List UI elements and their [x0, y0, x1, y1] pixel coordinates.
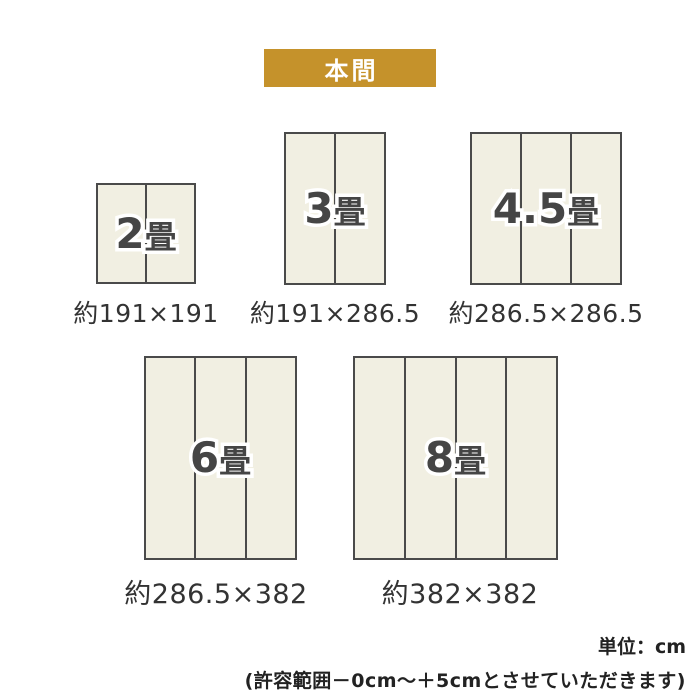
tatami-mat-2jo: 2畳 2畳 [96, 183, 196, 284]
tatami-mat-4-5jo: 4.5畳 4.5畳 [470, 132, 622, 285]
mat-dimensions-6jo: 約286.5×382 [124, 572, 307, 611]
tatami-panel [245, 358, 295, 558]
mat-dimensions-2jo: 約191×191 [73, 294, 218, 330]
tatami-mat-6jo: 6畳 6畳 [144, 356, 297, 560]
size-standard-banner: 本間 [264, 49, 436, 87]
size-diagram: 本間 2畳 2畳 約191×191 3畳 3畳 約191×286.5 [0, 0, 700, 700]
tatami-panel [194, 358, 244, 558]
tatami-panel [334, 134, 384, 283]
tatami-panels [146, 358, 295, 558]
tatami-panels [472, 134, 620, 283]
tatami-panel [455, 358, 506, 558]
tatami-panel [355, 358, 404, 558]
size-standard-label: 本間 [322, 51, 379, 86]
tatami-panel [145, 185, 194, 282]
tatami-panel [98, 185, 145, 282]
tatami-panel [570, 134, 620, 283]
tatami-panel [146, 358, 194, 558]
tatami-panel [286, 134, 334, 283]
tatami-panels [355, 358, 556, 558]
tatami-panel [404, 358, 455, 558]
tatami-mat-3jo: 3畳 3畳 [284, 132, 386, 285]
tatami-panel [505, 358, 556, 558]
unit-label: 単位：cm [245, 632, 686, 659]
tatami-panel [472, 134, 520, 283]
mat-dimensions-8jo: 約382×382 [382, 572, 539, 611]
tatami-panels [98, 185, 194, 282]
footnote: 単位：cm (許容範囲－0cm～＋5cmとさせていただきます) [245, 632, 686, 693]
tatami-panels [286, 134, 384, 283]
mat-dimensions-3jo: 約191×286.5 [250, 294, 420, 330]
mat-dimensions-4-5jo: 約286.5×286.5 [448, 294, 643, 330]
tolerance-note: (許容範囲－0cm～＋5cmとさせていただきます) [245, 666, 686, 693]
tatami-mat-8jo: 8畳 8畳 [353, 356, 558, 560]
tatami-panel [520, 134, 570, 283]
